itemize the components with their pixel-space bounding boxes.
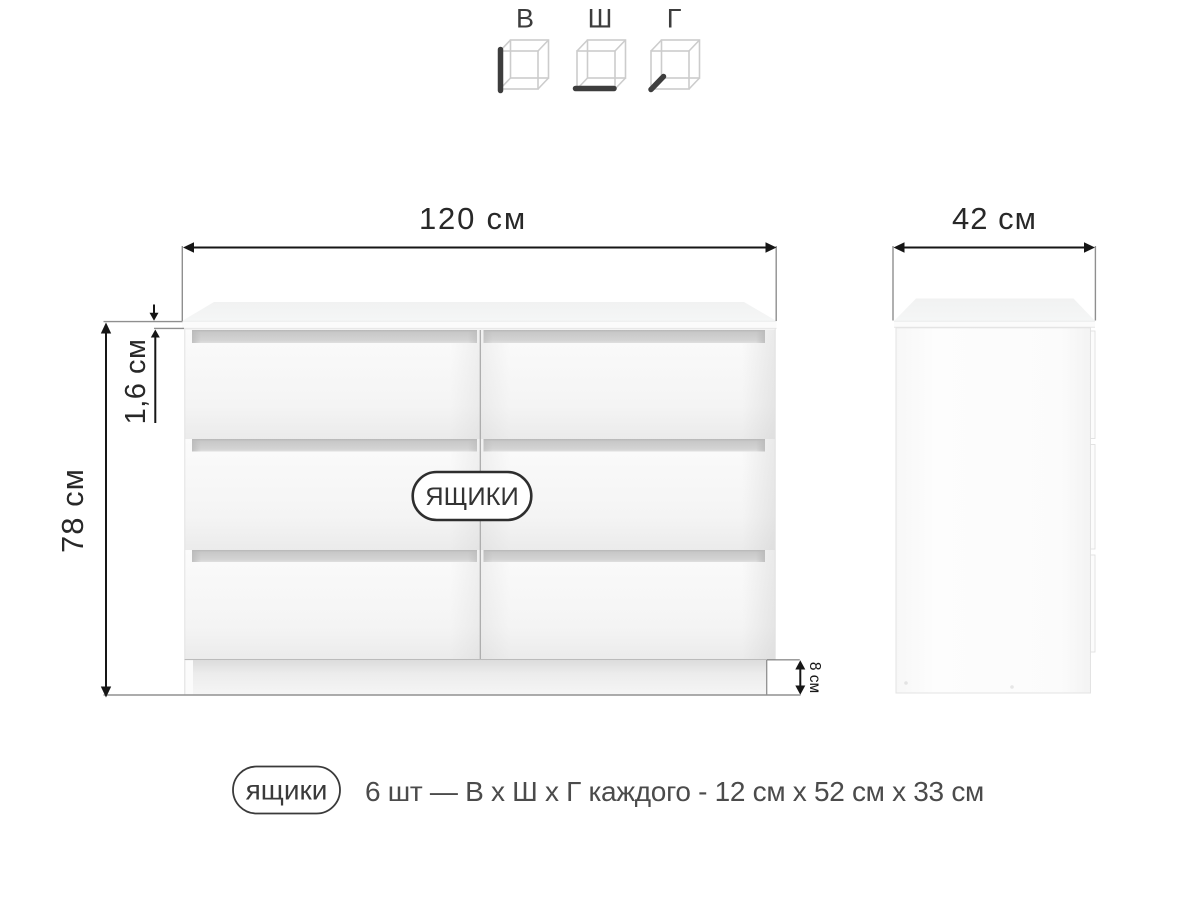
svg-text:Ш: Ш xyxy=(588,4,613,34)
svg-text:120 см: 120 см xyxy=(419,201,527,236)
svg-text:1,6 см: 1,6 см xyxy=(120,339,152,425)
svg-text:42 см: 42 см xyxy=(952,201,1037,236)
svg-text:В: В xyxy=(516,4,534,34)
svg-text:ящики: ящики xyxy=(246,775,328,806)
svg-text:78 см: 78 см xyxy=(55,468,90,553)
svg-text:8 см: 8 см xyxy=(806,662,823,693)
svg-text:Г: Г xyxy=(667,4,682,34)
svg-text:ЯЩИКИ: ЯЩИКИ xyxy=(425,483,518,511)
svg-text:6 шт — В х Ш х Г каждого - 12: 6 шт — В х Ш х Г каждого - 12 см х 52 см… xyxy=(365,776,984,807)
